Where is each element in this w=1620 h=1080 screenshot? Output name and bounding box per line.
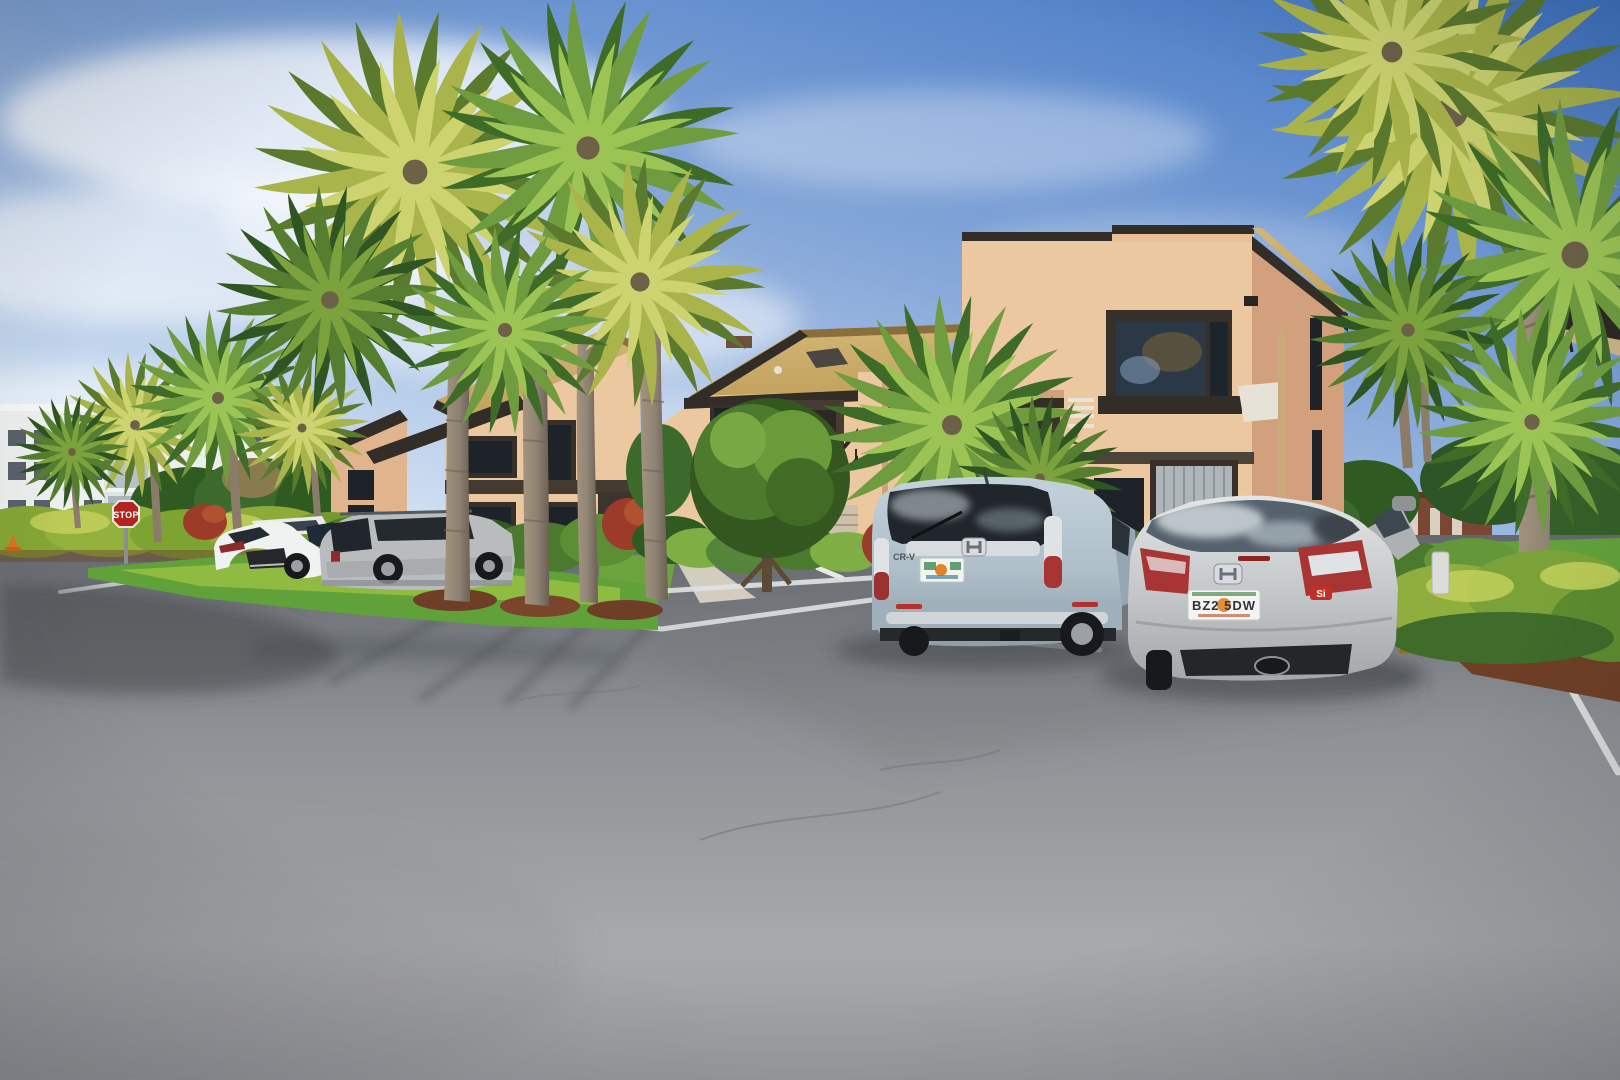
scene-canvas: STOP (0, 0, 1620, 1080)
photo-condo-parking-lot: STOP (0, 0, 1620, 1080)
vignette-overlay (0, 0, 1620, 1080)
